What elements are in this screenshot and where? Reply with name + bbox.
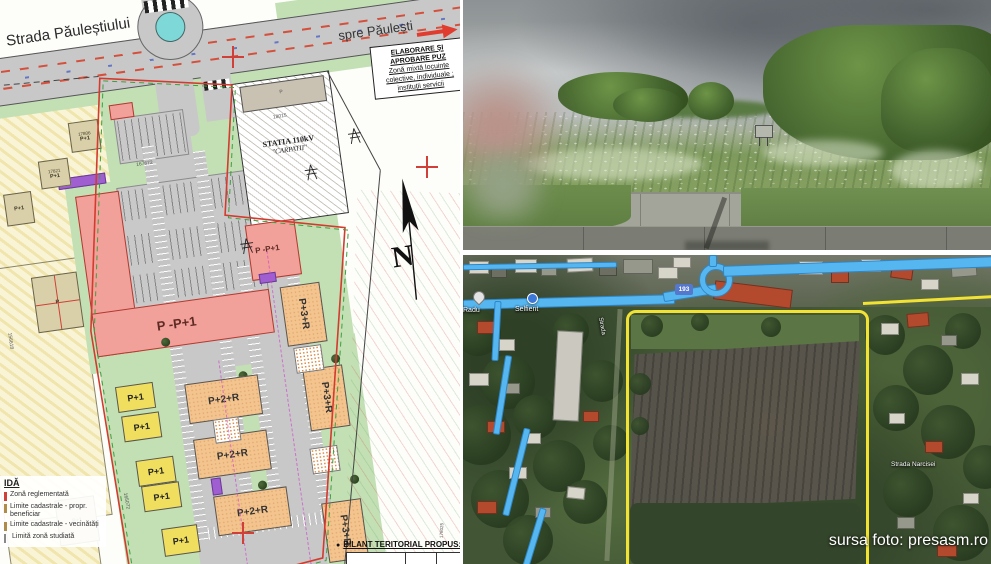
house xyxy=(583,411,599,422)
wildflower-patch xyxy=(891,150,983,190)
tree-canopy xyxy=(903,345,953,395)
station-building-label: P xyxy=(279,89,283,95)
grid-cross xyxy=(232,522,254,544)
approval-note-box: ELABORARE ȘI APROBARE PUZ Zonă mixtă loc… xyxy=(369,37,460,100)
house xyxy=(941,335,957,346)
house xyxy=(658,267,678,279)
bush xyxy=(881,48,991,152)
tree-canopy xyxy=(883,467,933,517)
plot-outline xyxy=(626,310,869,564)
pylon-icon xyxy=(239,237,254,256)
house xyxy=(889,413,905,424)
north-letter: N xyxy=(389,239,416,276)
house xyxy=(921,279,939,290)
house xyxy=(623,259,653,274)
building-p3r: P+3+R xyxy=(302,364,350,431)
zoning-plan-panel: P -P+1 P -P+1 P 18015 STATIA 110kV "CARP… xyxy=(0,0,460,564)
bush xyxy=(613,88,683,122)
pylon-icon xyxy=(304,163,319,182)
legend-swatch xyxy=(4,504,7,513)
poi-pin-icon xyxy=(527,293,538,304)
house-label: P+1 xyxy=(14,205,25,212)
existing-house: P xyxy=(31,271,84,333)
grid-cross xyxy=(222,46,244,68)
existing-house: P+1 xyxy=(3,191,35,227)
legend-swatch xyxy=(4,522,7,531)
camera-shadow xyxy=(685,241,769,250)
legend-title: IDĂ xyxy=(4,478,106,488)
legend-item: Zonă reglementată xyxy=(4,491,106,501)
existing-house: 17821 P+1 xyxy=(38,158,72,190)
bullet-icon: ● xyxy=(336,542,340,549)
street-label: Strada Narcisei xyxy=(891,461,935,468)
legend-item: Limite cadastrale - propr. beneficiar xyxy=(4,503,106,519)
house xyxy=(897,517,915,529)
satellite-map: 193 Radu Selfient Strada Strada Narcisei… xyxy=(463,255,991,564)
street-photo xyxy=(463,0,991,250)
building-p1: P+1 xyxy=(141,481,182,512)
grass-verge-right xyxy=(741,188,991,228)
building-p1: P+1 xyxy=(121,411,162,442)
playground xyxy=(309,445,340,475)
house xyxy=(925,441,943,453)
legend-item-label: Limită zonă studiată xyxy=(12,533,74,541)
legend: IDĂ Zonă reglementată Limite cadastrale … xyxy=(0,476,106,547)
tree-canopy xyxy=(873,385,919,431)
house xyxy=(963,493,979,504)
legend-swatch xyxy=(4,492,7,501)
house xyxy=(477,501,497,514)
privacy-blur xyxy=(463,148,556,223)
house xyxy=(566,486,585,500)
tree-canopy xyxy=(865,315,905,355)
house-label: P+1 xyxy=(50,172,61,179)
house-label: P xyxy=(55,299,59,305)
legend-swatch xyxy=(4,534,9,543)
legend-item-label: Zonă reglementată xyxy=(10,491,69,499)
house xyxy=(673,257,691,268)
house xyxy=(906,312,929,328)
legend-item-label: Limite cadastrale - propr. beneficiar xyxy=(10,503,106,519)
screenshot-root: P -P+1 P -P+1 P 18015 STATIA 110kV "CARP… xyxy=(0,0,991,564)
house xyxy=(961,373,979,385)
playground xyxy=(293,344,324,374)
house xyxy=(469,373,489,386)
place-label: Radu xyxy=(463,307,480,314)
pylon-icon xyxy=(347,127,362,146)
grid-cross xyxy=(416,156,438,178)
road-branch xyxy=(709,255,717,267)
photo-credit: sursa foto: presasm.ro xyxy=(803,532,988,550)
tree xyxy=(688,82,734,120)
field-sign xyxy=(755,125,773,138)
poi-label: Selfient xyxy=(515,306,538,313)
coord-number: 178025 xyxy=(439,523,445,538)
house xyxy=(881,323,899,335)
territorial-balance-title: ●BILANT TERITORIAL PROPUS: xyxy=(336,540,460,549)
building-p3r: P+3+R xyxy=(280,282,328,347)
house xyxy=(499,339,515,351)
technical-unit xyxy=(211,477,223,495)
territorial-balance-table xyxy=(346,552,460,564)
legend-item: Limită zonă studiată xyxy=(4,533,106,543)
building-p1: P+1 xyxy=(161,524,201,557)
wildflower-patch xyxy=(763,140,883,166)
existing-house: 17806 P+1 xyxy=(68,119,102,153)
long-building xyxy=(553,330,584,421)
building-p1: P+1 xyxy=(115,382,156,413)
route-badge: 193 xyxy=(675,284,693,295)
house-label: P+1 xyxy=(80,135,91,142)
legend-item-label: Limite cadastrale - vecinătăți xyxy=(10,521,99,529)
legend-item: Limite cadastrale - vecinătăți xyxy=(4,521,106,531)
